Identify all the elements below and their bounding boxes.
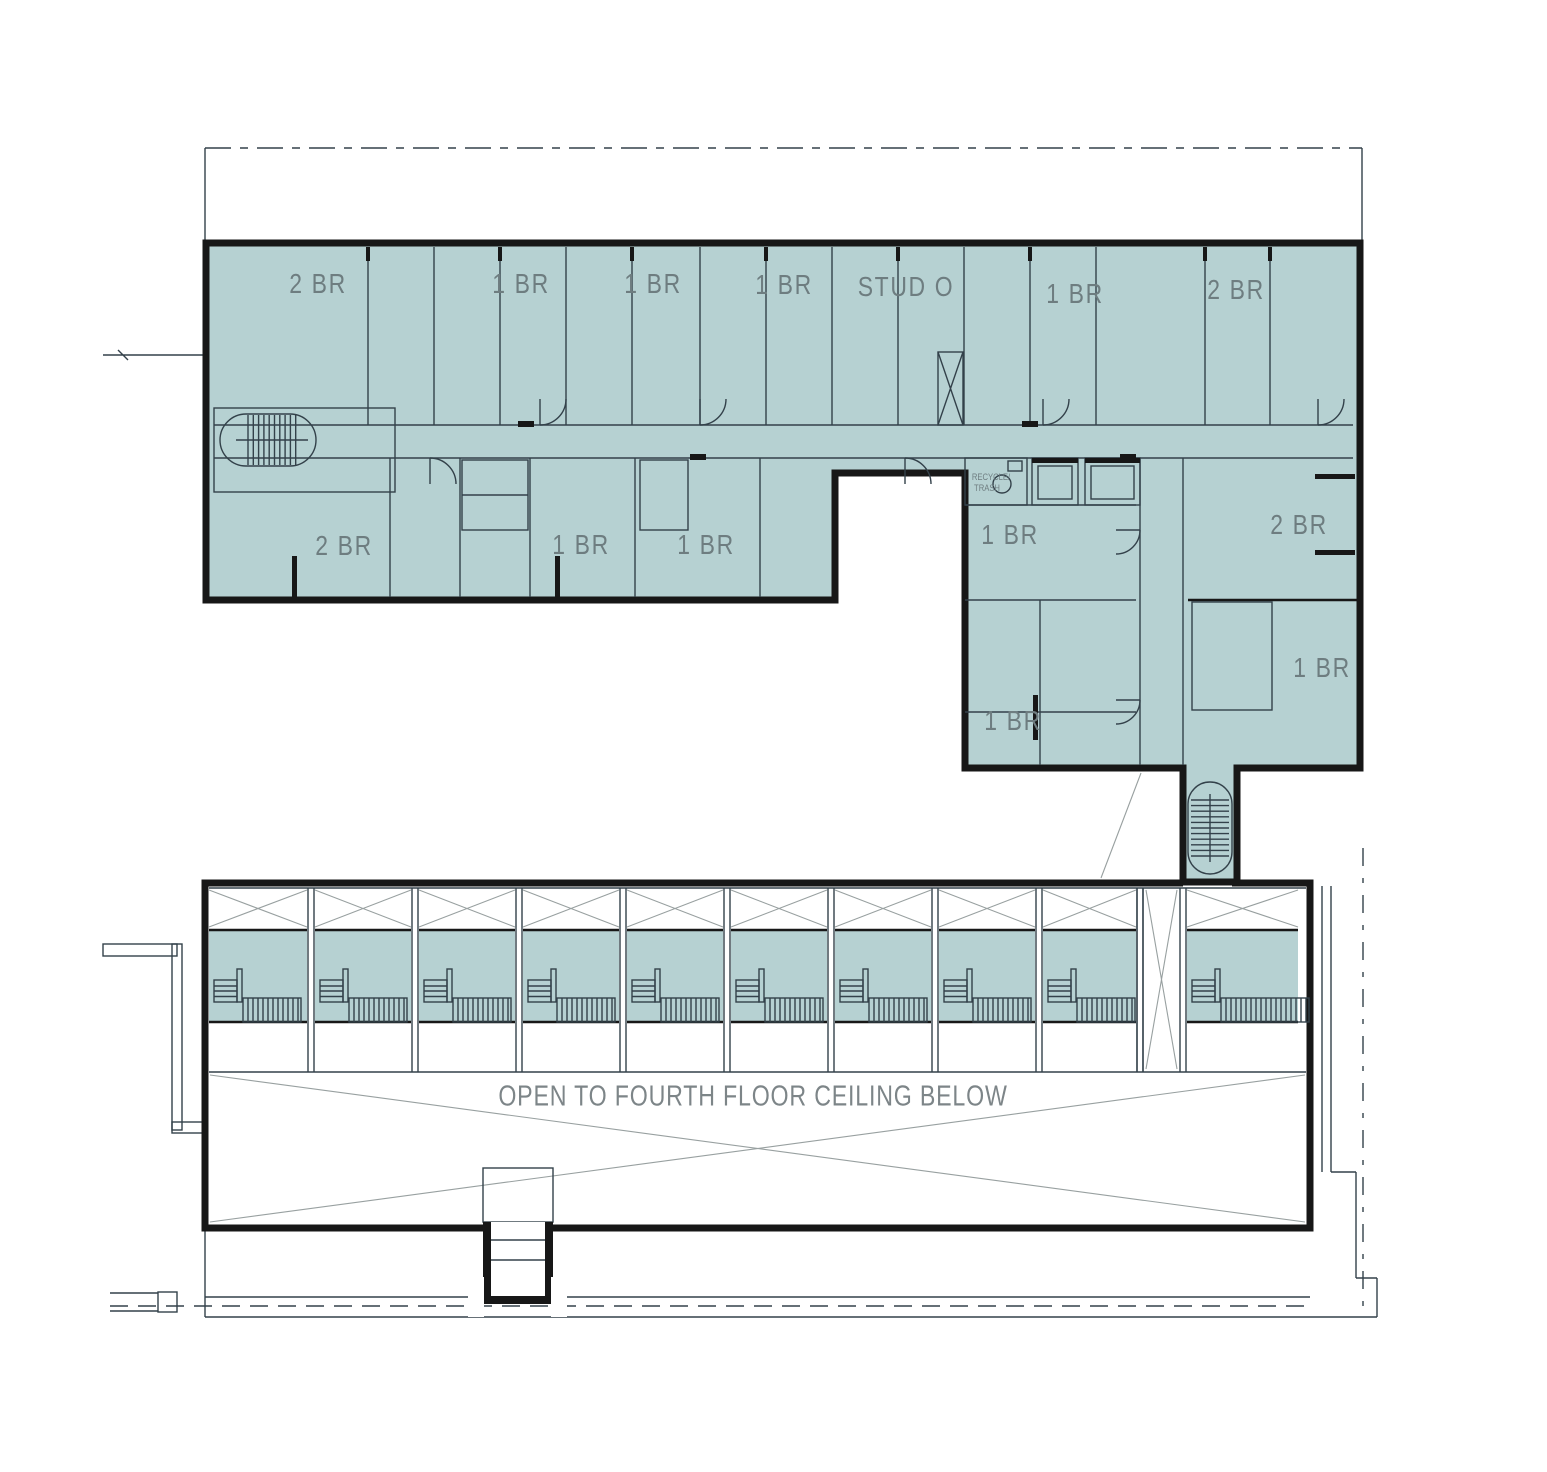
walkway-band — [110, 1230, 1310, 1317]
match-line-left — [103, 350, 203, 360]
storage-building — [205, 883, 1310, 1317]
floor-plan-drawing — [0, 0, 1547, 1472]
site-wall-hatched — [103, 944, 207, 1312]
site-edge-right — [1310, 848, 1377, 1317]
floor-plan-sheet: 2 BR1 BR1 BR1 BRSTUD O1 BR2 BR2 BR1 BR1 … — [0, 0, 1547, 1472]
residential-building — [206, 243, 1360, 882]
residential-building-fill — [206, 243, 1360, 882]
